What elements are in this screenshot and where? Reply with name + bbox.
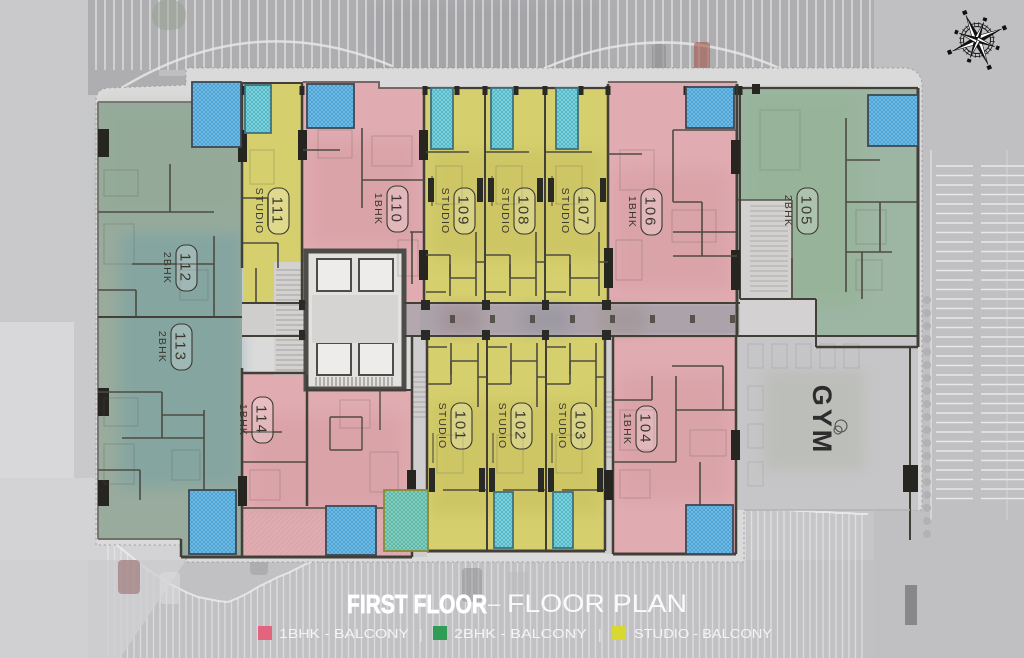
svg-text:103: 103 — [572, 410, 589, 441]
svg-text:STUDIO: STUDIO — [499, 188, 511, 235]
svg-text:108: 108 — [515, 195, 532, 226]
svg-text:2BHK: 2BHK — [161, 252, 173, 284]
svg-text:105: 105 — [798, 195, 815, 226]
svg-text:1BHK: 1BHK — [621, 413, 633, 445]
svg-text:1BHK: 1BHK — [372, 193, 384, 225]
svg-text:2BHK: 2BHK — [156, 331, 168, 363]
svg-text:GYM: GYM — [807, 385, 837, 456]
svg-text:114: 114 — [253, 405, 270, 435]
svg-text:STUDIO - BALCONY: STUDIO - BALCONY — [634, 626, 772, 641]
svg-text:STUDIO: STUDIO — [436, 403, 448, 450]
svg-text:107: 107 — [575, 195, 592, 226]
svg-text:2BHK: 2BHK — [782, 195, 794, 227]
svg-text:STUDIO: STUDIO — [556, 403, 568, 450]
svg-text:FIRST FLOOR: FIRST FLOOR — [347, 589, 487, 619]
svg-text:109: 109 — [455, 195, 472, 226]
svg-text:111: 111 — [269, 197, 286, 226]
svg-text:1BHK: 1BHK — [626, 196, 638, 228]
svg-text:112: 112 — [177, 253, 194, 283]
svg-text:113: 113 — [172, 332, 189, 362]
svg-text:101: 101 — [452, 410, 469, 441]
svg-text:110: 110 — [388, 194, 405, 224]
svg-text:STUDIO: STUDIO — [559, 188, 571, 235]
svg-text:1BHK: 1BHK — [237, 404, 249, 436]
svg-text:|: | — [598, 626, 602, 642]
svg-text:104: 104 — [637, 413, 654, 444]
svg-text:106: 106 — [642, 196, 659, 227]
svg-text:1BHK - BALCONY: 1BHK - BALCONY — [279, 626, 409, 641]
svg-text:2BHK - BALCONY: 2BHK - BALCONY — [454, 626, 587, 641]
svg-text:STUDIO: STUDIO — [253, 188, 265, 235]
svg-text:STUDIO: STUDIO — [439, 188, 451, 235]
svg-text:|: | — [419, 626, 423, 642]
svg-text:–: – — [488, 591, 501, 616]
svg-text:STUDIO: STUDIO — [496, 403, 508, 450]
svg-text:FLOOR PLAN: FLOOR PLAN — [507, 590, 687, 618]
svg-text:102: 102 — [512, 410, 529, 441]
